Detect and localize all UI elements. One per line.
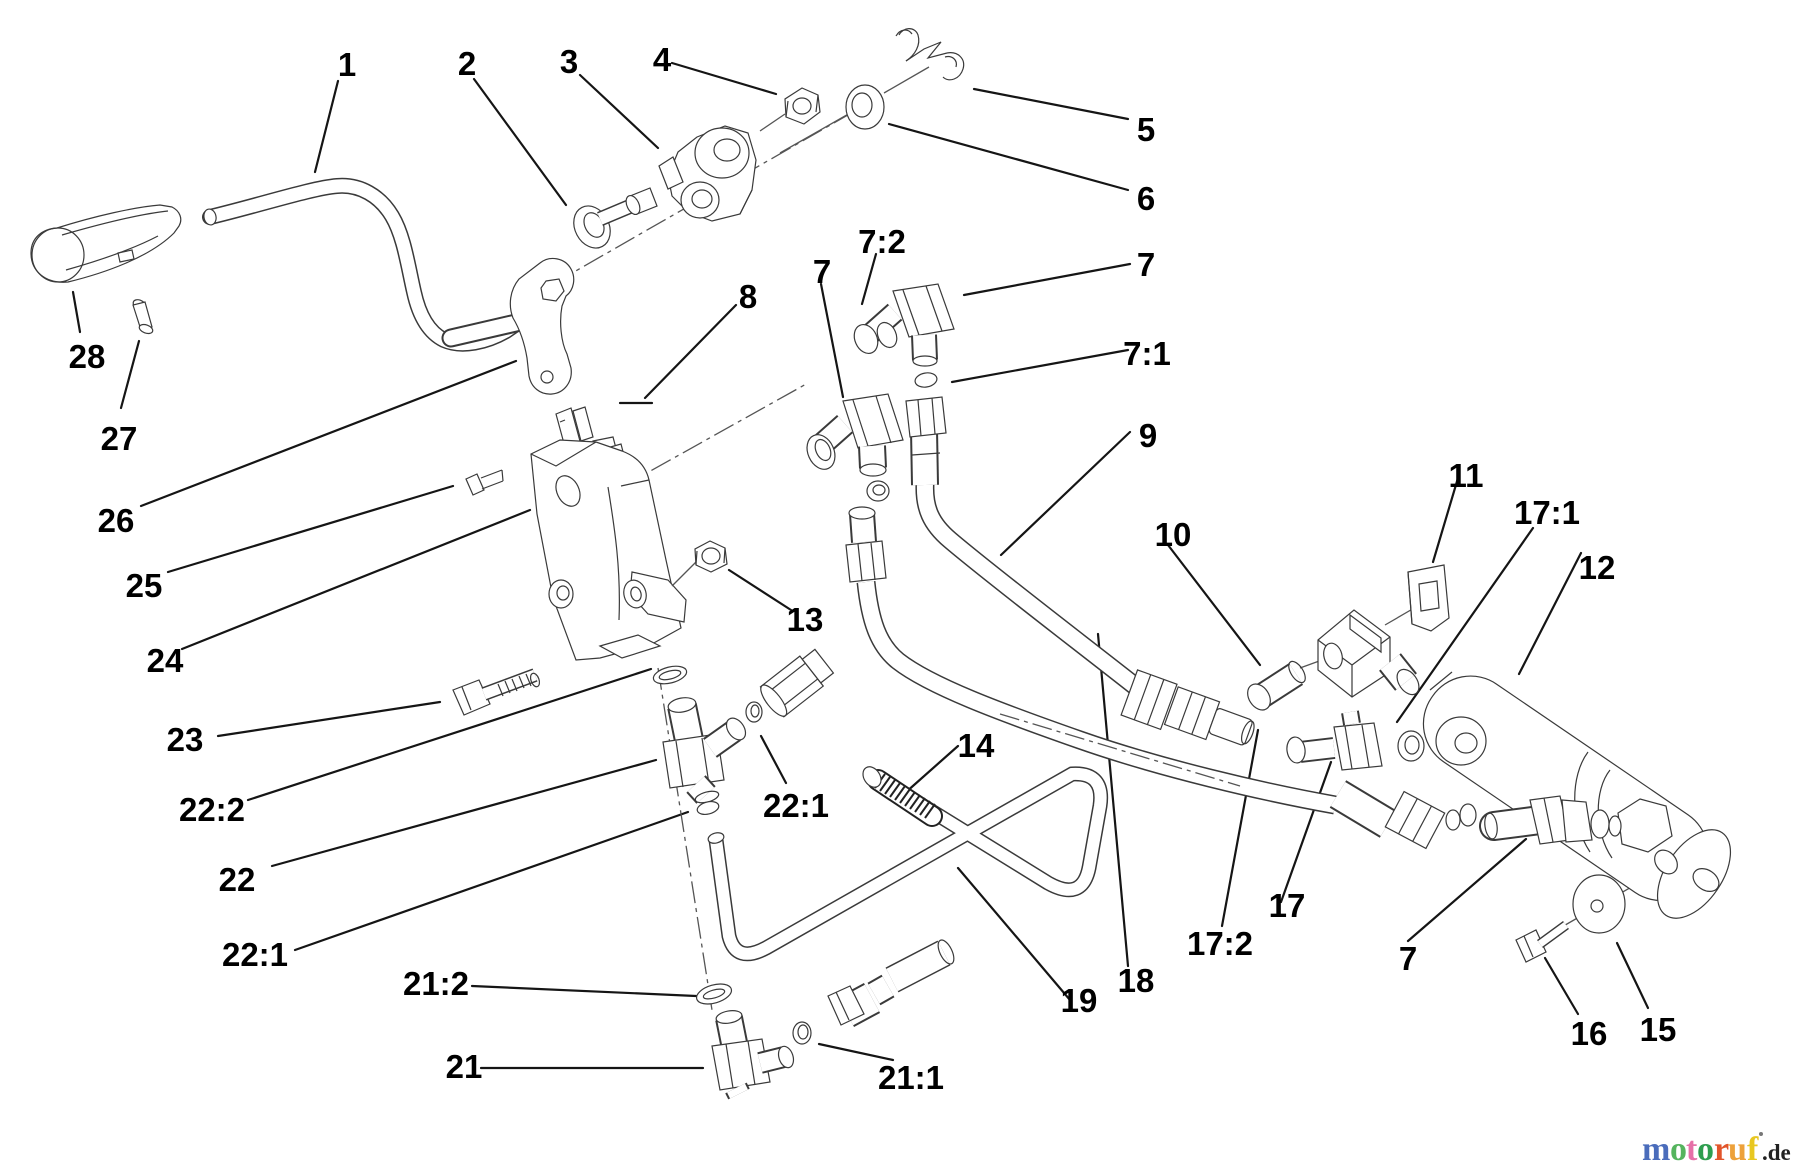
svg-text:17:1: 17:1 bbox=[1514, 494, 1580, 531]
svg-text:22:2: 22:2 bbox=[179, 791, 245, 828]
svg-text:7: 7 bbox=[1399, 940, 1417, 977]
svg-text:1: 1 bbox=[338, 46, 356, 83]
svg-text:18: 18 bbox=[1118, 962, 1155, 999]
svg-text:f: f bbox=[1747, 1131, 1759, 1168]
svg-text:16: 16 bbox=[1571, 1015, 1608, 1052]
svg-text:28: 28 bbox=[69, 338, 106, 375]
svg-text:11: 11 bbox=[1449, 457, 1484, 494]
svg-text:13: 13 bbox=[787, 601, 824, 638]
svg-text:19: 19 bbox=[1061, 982, 1098, 1019]
svg-text:24: 24 bbox=[147, 642, 184, 679]
svg-text:2: 2 bbox=[458, 45, 476, 82]
svg-text:21:2: 21:2 bbox=[403, 965, 469, 1002]
svg-text:21: 21 bbox=[446, 1048, 483, 1085]
svg-text:7:2: 7:2 bbox=[858, 223, 906, 260]
svg-text:22:1: 22:1 bbox=[222, 936, 288, 973]
svg-text:6: 6 bbox=[1137, 180, 1155, 217]
svg-text:5: 5 bbox=[1137, 111, 1155, 148]
svg-text:22:1: 22:1 bbox=[763, 787, 829, 824]
svg-text:8: 8 bbox=[739, 278, 757, 315]
svg-text:u: u bbox=[1728, 1131, 1747, 1168]
svg-text:17: 17 bbox=[1269, 887, 1306, 924]
svg-text:27: 27 bbox=[101, 420, 138, 457]
svg-text:.de: .de bbox=[1762, 1140, 1791, 1165]
svg-text:o: o bbox=[1697, 1131, 1714, 1168]
svg-text:10: 10 bbox=[1155, 516, 1192, 553]
svg-text:m: m bbox=[1642, 1131, 1670, 1168]
svg-text:3: 3 bbox=[560, 43, 578, 80]
svg-text:7: 7 bbox=[813, 253, 831, 290]
svg-text:9: 9 bbox=[1139, 417, 1157, 454]
svg-text:26: 26 bbox=[98, 502, 135, 539]
svg-text:7: 7 bbox=[1137, 246, 1155, 283]
svg-text:r: r bbox=[1714, 1131, 1729, 1168]
svg-text:21:1: 21:1 bbox=[878, 1059, 944, 1096]
svg-text:15: 15 bbox=[1640, 1011, 1677, 1048]
svg-text:14: 14 bbox=[958, 727, 995, 764]
svg-text:17:2: 17:2 bbox=[1187, 925, 1253, 962]
svg-text:7:1: 7:1 bbox=[1123, 335, 1171, 372]
svg-text:o: o bbox=[1670, 1131, 1687, 1168]
svg-text:22: 22 bbox=[219, 861, 256, 898]
svg-text:23: 23 bbox=[167, 721, 204, 758]
svg-text:12: 12 bbox=[1579, 549, 1616, 586]
svg-text:4: 4 bbox=[653, 41, 672, 78]
svg-text:25: 25 bbox=[126, 567, 163, 604]
